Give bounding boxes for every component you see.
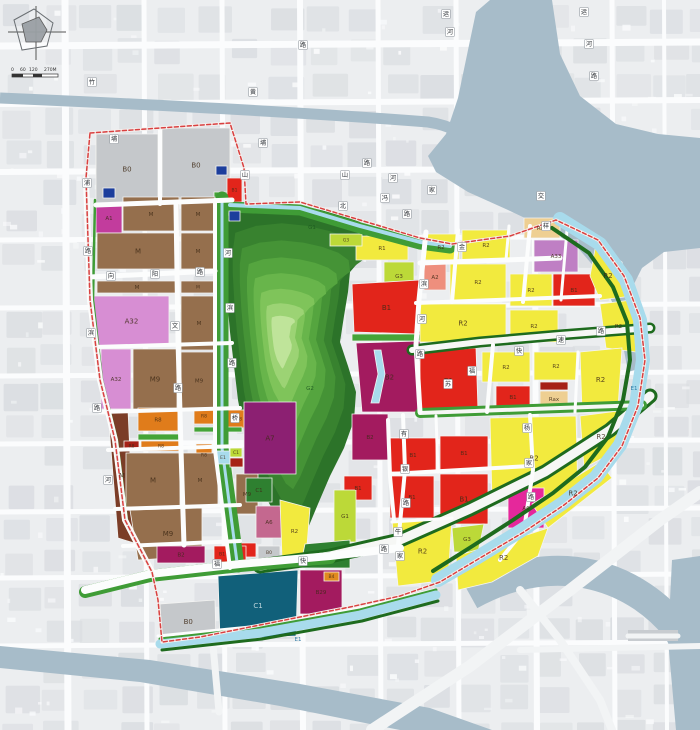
zone-label: R2 bbox=[437, 245, 444, 251]
area-label-E1: E1 bbox=[295, 637, 302, 643]
area-label-G1: G1 bbox=[308, 225, 316, 231]
zone-label: B2 bbox=[366, 435, 373, 441]
road-label-char: 埔 bbox=[111, 135, 117, 143]
road-label-char: 家 bbox=[429, 186, 435, 194]
road-label-char: 交 bbox=[538, 192, 544, 200]
zone-label: R2 bbox=[596, 376, 605, 384]
road-label-char: 路 bbox=[364, 159, 371, 167]
road-label-char: 家 bbox=[397, 552, 403, 560]
road-label-char: 路 bbox=[403, 499, 410, 507]
road-label-char: 滨 bbox=[227, 304, 233, 312]
zone-label: R2 bbox=[596, 433, 605, 441]
zone-label: C1 bbox=[233, 450, 239, 456]
zone-label: G3 bbox=[463, 537, 471, 543]
zone-label: B0 bbox=[122, 165, 131, 173]
zone-B1d bbox=[540, 382, 568, 390]
road-label-char: 滨 bbox=[421, 280, 427, 288]
zone-label: B1 bbox=[409, 453, 416, 459]
road-label-char: 桥 bbox=[232, 414, 238, 422]
road-label-char: 快 bbox=[516, 347, 523, 355]
zone-label: M9 bbox=[243, 492, 252, 498]
zone-label: R2 bbox=[530, 324, 537, 330]
zone-label: A6 bbox=[522, 506, 530, 512]
road-label-char: 快 bbox=[300, 557, 307, 565]
road-label-char: 家 bbox=[526, 459, 532, 467]
zone-label: R8 bbox=[201, 414, 207, 420]
road-label-char: 向 bbox=[108, 272, 114, 280]
road-label-char: 有 bbox=[401, 430, 407, 438]
zone-label: B4 bbox=[329, 574, 335, 580]
zone-label: R1 bbox=[378, 246, 385, 252]
road-label-char: 冯 bbox=[382, 194, 388, 202]
zone-label: R2 bbox=[474, 280, 481, 286]
road-label-char: 运 bbox=[581, 8, 587, 16]
zone-label: B1 bbox=[460, 451, 467, 457]
zone-label: G3 bbox=[343, 238, 349, 244]
area-label-G2: G2 bbox=[306, 386, 314, 392]
zone-label: M bbox=[119, 472, 125, 480]
road-label-char: 路 bbox=[94, 404, 101, 412]
zone-label: R2 bbox=[418, 547, 427, 555]
zone-label: B0 bbox=[191, 161, 200, 169]
road-label-char: 浦 bbox=[84, 179, 90, 187]
zone-label: R2 bbox=[603, 272, 612, 280]
road-label-char: 埔 bbox=[260, 139, 266, 147]
zone-U bbox=[216, 166, 227, 175]
zone-label: B1 bbox=[570, 288, 577, 294]
zone-label: R2 bbox=[527, 288, 534, 294]
zone-label: R2 bbox=[568, 489, 577, 497]
zone-label: R2 bbox=[615, 324, 622, 330]
zone-G1 bbox=[138, 434, 182, 440]
zone-label: B1 bbox=[382, 304, 391, 312]
zone-label: E1 bbox=[220, 455, 226, 461]
zone-U bbox=[103, 188, 115, 198]
zone-label: B1 bbox=[459, 495, 468, 503]
zone-label: C1 bbox=[253, 602, 262, 610]
road-label-char: 滨 bbox=[88, 329, 94, 337]
zone-label: R2 bbox=[482, 243, 489, 249]
zone-label: G1 bbox=[341, 514, 349, 520]
zone-label: M bbox=[196, 249, 201, 255]
road-label-char: 山 bbox=[242, 171, 248, 179]
road-label-char: 路 bbox=[591, 72, 598, 80]
planning-map: B0B0B1A1MMMMMMA32A32M9MM9MR8R8R8R8R8R8MM… bbox=[0, 0, 700, 730]
zone-label: B0 bbox=[184, 618, 193, 626]
road-label-char: 河 bbox=[105, 476, 111, 484]
road-label-char: 河 bbox=[447, 28, 453, 36]
zone-label: R2 bbox=[502, 365, 509, 371]
road-label-char: 竹 bbox=[89, 78, 95, 86]
road-label-char: 路 bbox=[528, 493, 535, 501]
road-label-char: 河 bbox=[419, 315, 425, 323]
road-label-char: 河 bbox=[586, 40, 592, 48]
zone-label: R8 bbox=[158, 444, 164, 450]
zone-label: B1 bbox=[354, 486, 361, 492]
zone-label: B1 bbox=[509, 395, 516, 401]
zone-label: A32 bbox=[111, 377, 122, 383]
road-label-char: 路 bbox=[300, 41, 307, 49]
road-label-char: 苏 bbox=[445, 380, 451, 388]
zone-label: R2 bbox=[458, 319, 467, 327]
road-label-char: 山 bbox=[342, 171, 348, 179]
zone-label: B0 bbox=[266, 550, 272, 556]
road-label-char: 速 bbox=[558, 336, 564, 344]
zone-label: R8 bbox=[201, 453, 207, 459]
road-label-char: 路 bbox=[229, 359, 236, 367]
zone-label: M bbox=[149, 212, 154, 218]
zone-label: Rax bbox=[549, 397, 560, 403]
road-label-char: 杨 bbox=[524, 424, 530, 432]
road-label-char: 阳 bbox=[152, 270, 158, 278]
road-label-char: 文 bbox=[172, 322, 178, 330]
road-label-char: 福 bbox=[214, 560, 220, 568]
road-label-char: 路 bbox=[598, 327, 605, 335]
zone-label: R8 bbox=[154, 417, 162, 423]
road-label-char: 路 bbox=[175, 384, 182, 392]
zone-label: A7 bbox=[265, 434, 274, 442]
zone-label: M9 bbox=[163, 530, 174, 538]
zone-label: M bbox=[135, 247, 141, 255]
area-label-E1: E1 bbox=[631, 386, 638, 392]
road-label-char: 河 bbox=[225, 249, 231, 257]
zone-label: A1 bbox=[105, 216, 112, 222]
road-label-char: 北 bbox=[340, 202, 347, 210]
zone-label: G3 bbox=[395, 274, 403, 280]
zone-label: B29 bbox=[316, 590, 327, 596]
zone-label: R2 bbox=[291, 529, 298, 535]
road-label-char: 路 bbox=[197, 268, 204, 276]
road-label-char: 河 bbox=[390, 174, 396, 182]
zone-label: A33 bbox=[551, 254, 562, 260]
road-label-char: 金 bbox=[459, 243, 466, 251]
zone-label: M bbox=[135, 285, 140, 291]
zone-label: C1 bbox=[255, 488, 262, 494]
zone-label: R8 bbox=[129, 444, 135, 450]
zone-label: R2 bbox=[552, 364, 559, 370]
zone-B1d bbox=[230, 458, 243, 467]
road-label-char: 样 bbox=[543, 222, 549, 230]
zone-label: M bbox=[196, 285, 200, 291]
zone-label: B2 bbox=[385, 373, 394, 381]
road-label-char: 黄 bbox=[250, 88, 256, 96]
road-label-char: 福 bbox=[469, 367, 475, 375]
road-label-char: 路 bbox=[417, 350, 424, 358]
zone-label: M9 bbox=[195, 378, 204, 384]
zone-label: B1 bbox=[219, 552, 225, 558]
zone-G1 bbox=[352, 334, 420, 341]
road-label-char: 路 bbox=[381, 545, 388, 553]
zone-label: A32 bbox=[125, 317, 139, 325]
zone-label: M bbox=[150, 476, 156, 484]
zone-label: A2 bbox=[431, 275, 438, 281]
zone-label: M bbox=[197, 321, 202, 327]
road-label-char: 牛 bbox=[395, 528, 401, 536]
road-label-char: 银 bbox=[402, 465, 408, 473]
road-label-char: 路 bbox=[404, 210, 411, 218]
zone-label: M bbox=[196, 212, 201, 218]
zone-label: M9 bbox=[150, 375, 161, 383]
zone-U bbox=[229, 211, 240, 221]
road-label-char: 运 bbox=[443, 10, 449, 18]
zone-label: M bbox=[198, 478, 203, 484]
zone-label: R2 bbox=[499, 554, 508, 562]
road-label-char: 路 bbox=[85, 247, 92, 255]
zone-label: A6 bbox=[265, 520, 273, 526]
zone-label: B1 bbox=[232, 188, 238, 194]
map-canvas: B0B0B1A1MMMMMMA32A32M9MM9MR8R8R8R8R8R8MM… bbox=[0, 0, 700, 730]
zone-label: B2 bbox=[177, 552, 184, 558]
